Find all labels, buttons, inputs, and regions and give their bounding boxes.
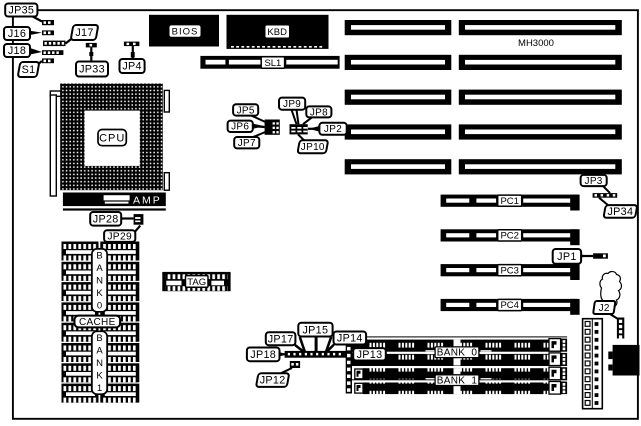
svg-text:J17: J17 bbox=[75, 27, 93, 39]
svg-text:JP5: JP5 bbox=[237, 105, 255, 116]
svg-text:BANK 1: BANK 1 bbox=[437, 376, 478, 387]
svg-text:S1: S1 bbox=[22, 64, 36, 76]
svg-text:JP28: JP28 bbox=[93, 214, 119, 226]
svg-text:J18: J18 bbox=[8, 45, 26, 57]
svg-text:JP18: JP18 bbox=[250, 349, 276, 361]
svg-text:A: A bbox=[96, 345, 103, 356]
svg-text:J2: J2 bbox=[599, 303, 610, 314]
svg-text:KBD: KBD bbox=[267, 27, 287, 38]
svg-text:JP10: JP10 bbox=[301, 142, 325, 153]
svg-text:JP13: JP13 bbox=[357, 349, 383, 361]
svg-text:JP7: JP7 bbox=[238, 138, 256, 149]
svg-text:TAG: TAG bbox=[187, 277, 206, 288]
svg-text:PC2: PC2 bbox=[500, 231, 518, 242]
svg-text:JP6: JP6 bbox=[231, 122, 249, 133]
svg-text:B: B bbox=[96, 333, 102, 344]
svg-text:JP15: JP15 bbox=[302, 324, 328, 336]
svg-text:JP29: JP29 bbox=[107, 232, 132, 243]
svg-text:PC3: PC3 bbox=[500, 265, 518, 276]
svg-text:JP4: JP4 bbox=[122, 61, 142, 73]
svg-text:JP34: JP34 bbox=[607, 206, 633, 218]
svg-text:JP17: JP17 bbox=[268, 333, 294, 345]
svg-text:N: N bbox=[96, 276, 103, 287]
svg-text:0: 0 bbox=[97, 301, 102, 312]
svg-text:SL1: SL1 bbox=[264, 58, 281, 69]
svg-text:B: B bbox=[96, 250, 102, 261]
svg-text:CACHE: CACHE bbox=[79, 317, 116, 328]
svg-text:JP9: JP9 bbox=[283, 99, 301, 110]
svg-text:CPU: CPU bbox=[99, 132, 125, 144]
svg-text:J16: J16 bbox=[8, 28, 26, 40]
svg-text:A: A bbox=[96, 263, 103, 274]
svg-text:MH3000: MH3000 bbox=[518, 38, 554, 49]
svg-text:PC1: PC1 bbox=[500, 196, 518, 207]
svg-text:AMP: AMP bbox=[133, 195, 162, 207]
svg-text:JP12: JP12 bbox=[260, 375, 286, 387]
svg-text:JP8: JP8 bbox=[310, 107, 328, 118]
svg-text:K: K bbox=[96, 371, 103, 382]
svg-text:JP14: JP14 bbox=[337, 333, 363, 345]
svg-text:JP1: JP1 bbox=[557, 251, 577, 263]
svg-text:BANK 0: BANK 0 bbox=[437, 348, 478, 359]
svg-text:JP33: JP33 bbox=[79, 64, 105, 76]
svg-text:JP35: JP35 bbox=[8, 5, 34, 17]
svg-text:JP2: JP2 bbox=[324, 124, 342, 135]
svg-text:1: 1 bbox=[97, 383, 102, 394]
svg-text:K: K bbox=[96, 288, 103, 299]
svg-text:BIOS: BIOS bbox=[172, 27, 199, 38]
svg-text:PC4: PC4 bbox=[500, 300, 518, 311]
svg-text:N: N bbox=[96, 358, 103, 369]
svg-text:JP3: JP3 bbox=[585, 176, 603, 187]
